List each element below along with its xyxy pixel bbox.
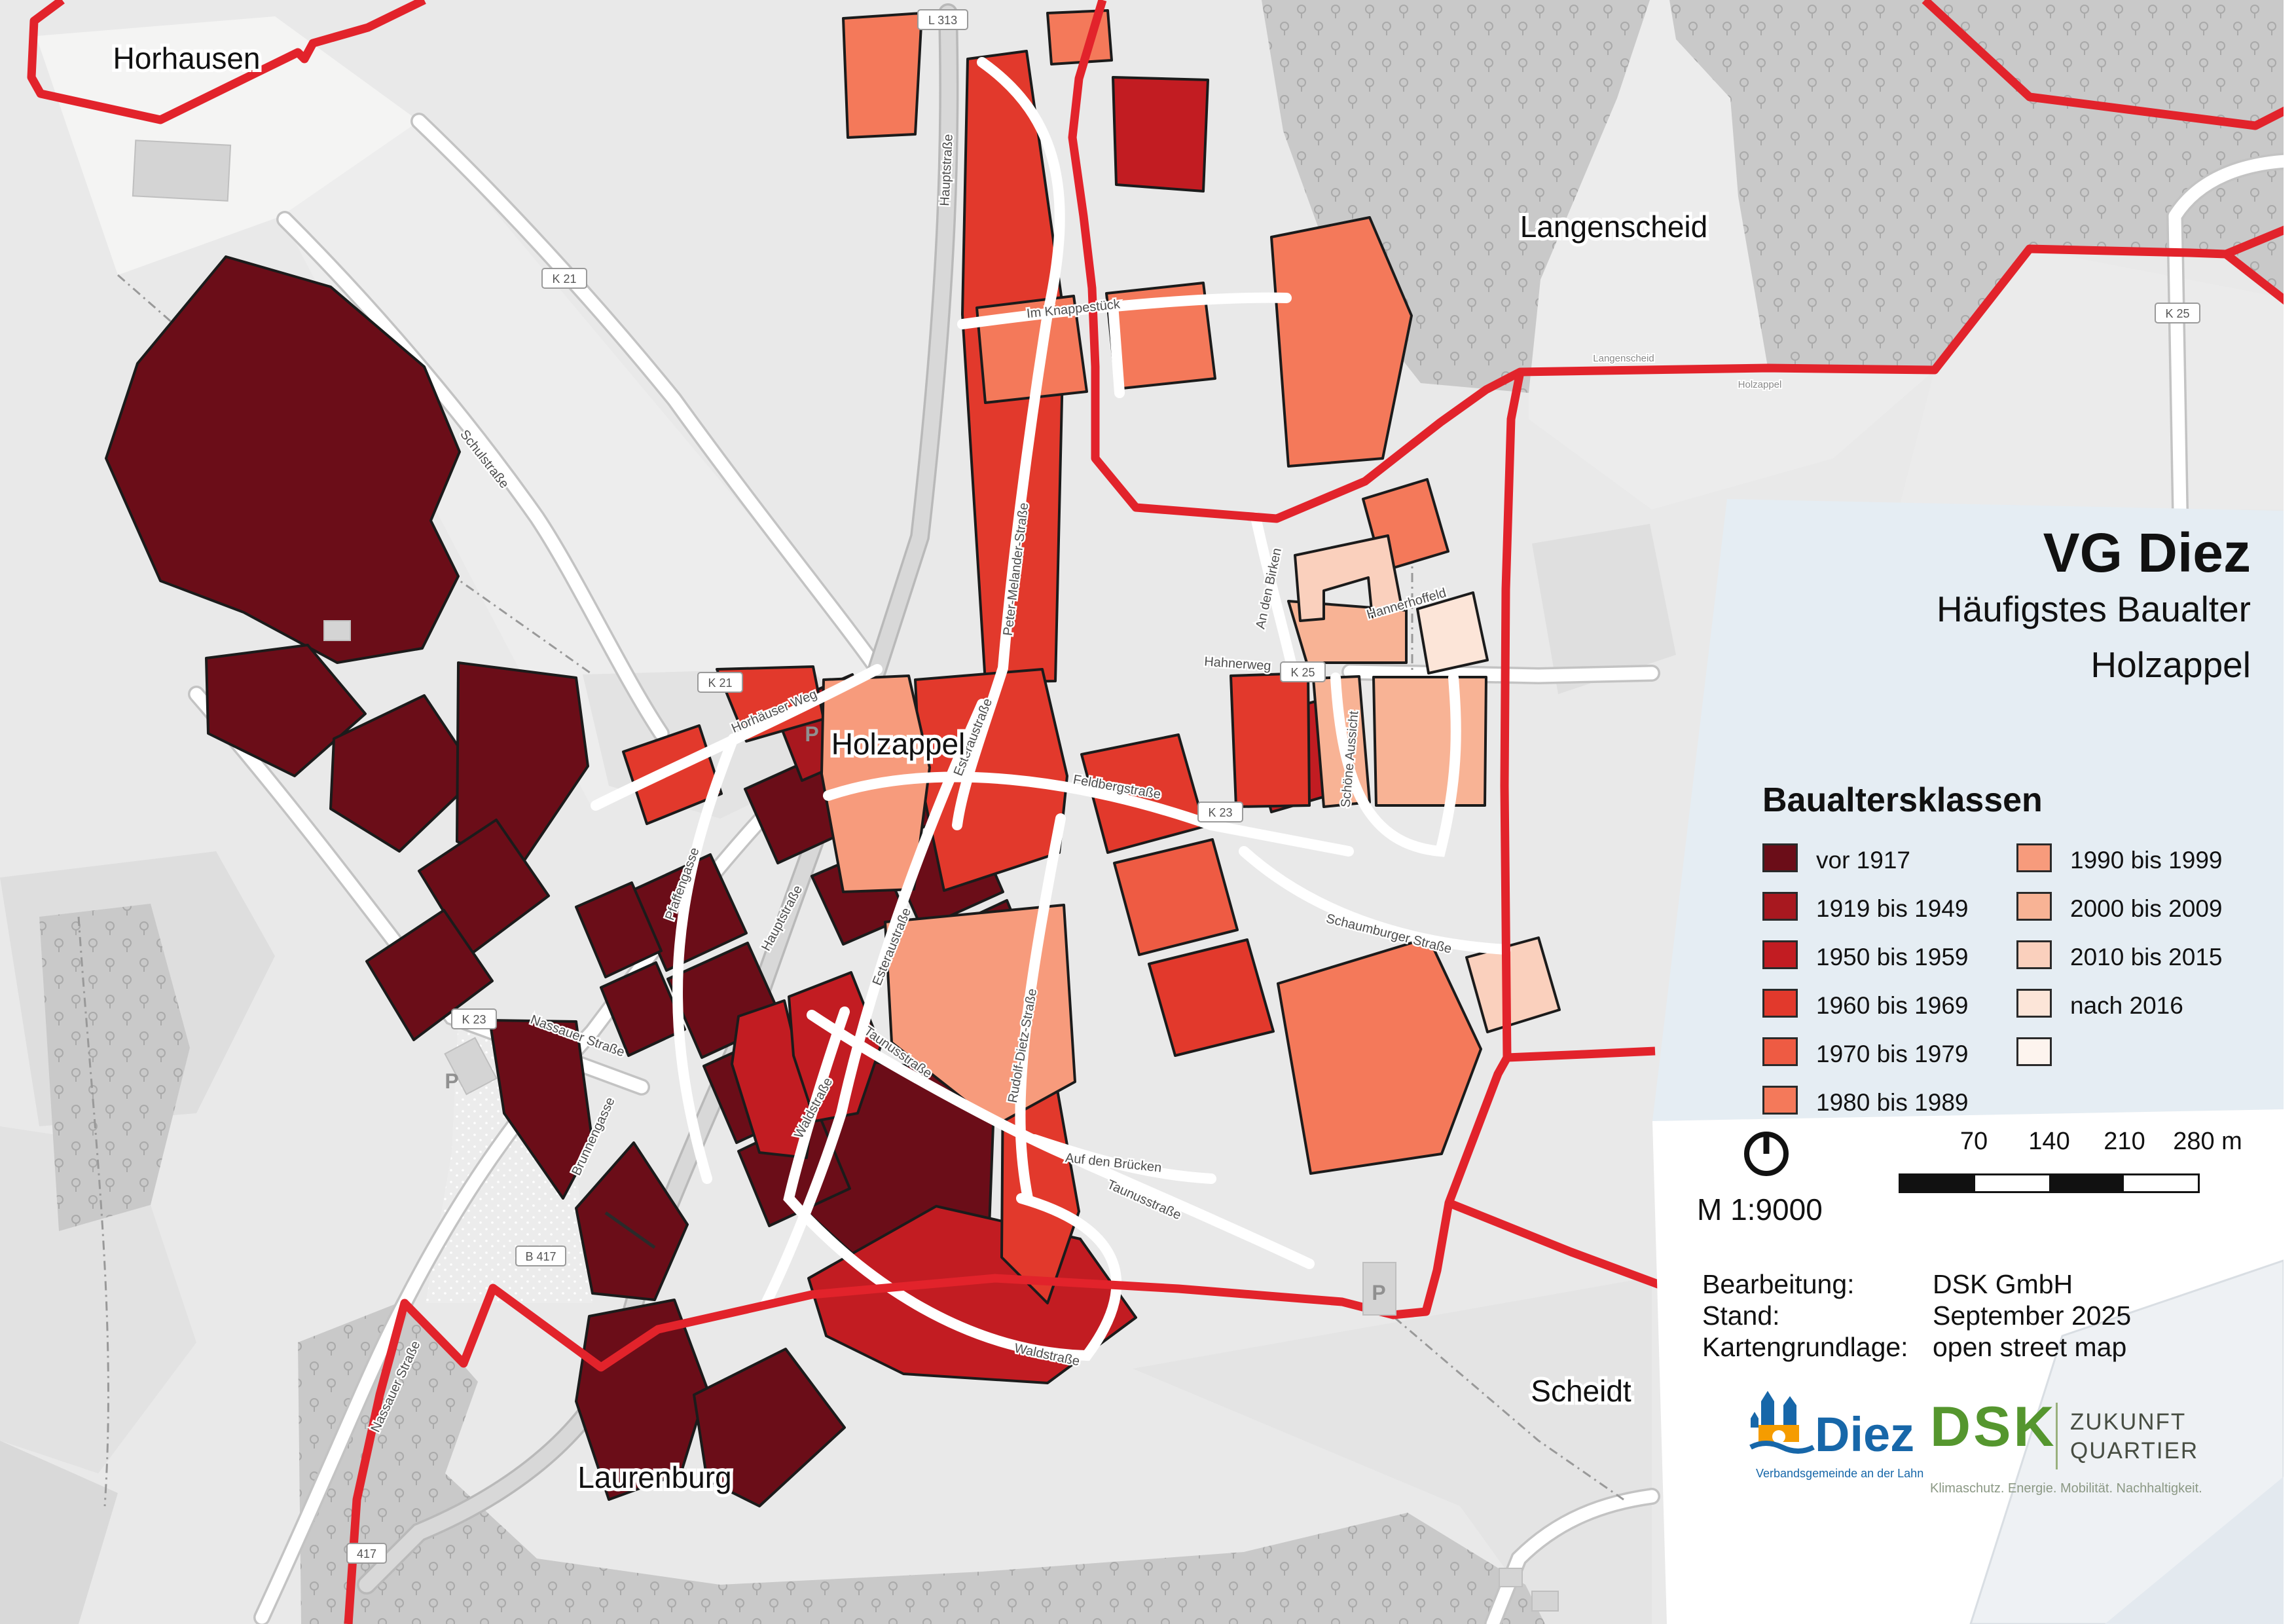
diez-castle-icon (1749, 1387, 1815, 1459)
dsk-logo-tagline: Klimaschutz. Energie. Mobilität. Nachhal… (1930, 1481, 2202, 1496)
legend-label: vor 1917 (1816, 847, 1910, 874)
scalebar-segment (2049, 1175, 2124, 1191)
legend-swatch (2016, 989, 2052, 1018)
parking-icon: P (805, 722, 818, 746)
svg-text:K 21: K 21 (708, 676, 732, 690)
legend-label: nach 2016 (2070, 992, 2183, 1020)
svg-text:K 23: K 23 (462, 1013, 486, 1026)
legend-label: 2000 bis 2009 (2070, 895, 2222, 923)
svg-text:K 21: K 21 (552, 272, 576, 286)
place-label-holzappel: Holzappel (831, 727, 966, 761)
svg-text:417: 417 (357, 1547, 376, 1560)
svg-text:Holzappel: Holzappel (1738, 379, 1782, 390)
dsk-logo-line1: ZUKUNFT (2070, 1409, 2186, 1435)
dsk-logo-text: DSK (1930, 1395, 2057, 1460)
legend-swatch (2016, 1037, 2052, 1066)
legend-swatch (2016, 940, 2052, 969)
svg-text:K 23: K 23 (1208, 806, 1232, 819)
credit-value: open street map (1933, 1332, 2126, 1363)
legend-label: 1950 bis 1959 (1816, 944, 1968, 971)
parking-icon: P (445, 1069, 458, 1093)
legend-title-block: VG Diez Häufigstes Baualter Holzappel (1937, 524, 2251, 693)
map-scale: M 1:9000 (1697, 1192, 1823, 1227)
credit-label: Bearbeitung: (1702, 1269, 1855, 1300)
legend-swatch (1762, 1086, 1798, 1115)
map-subtitle: Häufigstes Baualter (1937, 581, 2251, 637)
legend-swatch (1762, 989, 1798, 1018)
legend-label: 1960 bis 1969 (1816, 992, 1968, 1020)
svg-text:Langenscheid: Langenscheid (1593, 353, 1654, 364)
legend-swatch (1762, 1037, 1798, 1066)
place-label-horhausen: Horhausen (113, 41, 260, 75)
diez-logo-subtitle: Verbandsgemeinde an der Lahn (1756, 1467, 1923, 1481)
diez-logo-text: Diez (1815, 1407, 1914, 1462)
place-label-langenscheid: Langenscheid (1520, 210, 1707, 244)
legend-label: 1980 bis 1989 (1816, 1089, 1968, 1116)
dsk-logo-line2: QUARTIER (2070, 1438, 2198, 1464)
map-poster: K 21 K 21 K 23 K 23 K 25 K 25 L 313 B 41… (0, 0, 2296, 1624)
legend-swatch (1762, 892, 1798, 921)
svg-text:K 25: K 25 (2165, 307, 2189, 320)
legend-swatch (1762, 843, 1798, 872)
scalebar-segment (1901, 1175, 1975, 1191)
credit-label: Kartengrundlage: (1702, 1332, 1908, 1363)
scalebar-ticks: 70 140 210 280 m (0, 1128, 2296, 1156)
credit-label: Stand: (1702, 1301, 1780, 1331)
map-area-name: Holzappel (1937, 637, 2251, 693)
legend-label: 1970 bis 1979 (1816, 1041, 1968, 1068)
place-label-laurenburg: Laurenburg (577, 1460, 731, 1494)
svg-text:B 417: B 417 (525, 1250, 556, 1263)
legend-heading: Baualtersklassen (1762, 781, 2043, 820)
scalebar-segment (2124, 1175, 2198, 1191)
svg-text:K 25: K 25 (1290, 666, 1315, 679)
dsk-logo-divider (2056, 1403, 2058, 1469)
legend-label: 1919 bis 1949 (1816, 895, 1968, 923)
legend-label: 2010 bis 2015 (2070, 944, 2222, 971)
legend-swatch (1762, 940, 1798, 969)
legend-label: 1990 bis 1999 (2070, 847, 2222, 874)
svg-text:L 313: L 313 (928, 14, 957, 27)
scalebar (1899, 1173, 2200, 1193)
scalebar-tick: 70 (1960, 1128, 1988, 1156)
scalebar-segment (1975, 1175, 2050, 1191)
scalebar-tick: 210 (2104, 1128, 2145, 1156)
parking-icon: P (1372, 1281, 1385, 1304)
scalebar-tick: 140 (2028, 1128, 2069, 1156)
page-margin (2284, 0, 2296, 1624)
legend-swatch (2016, 843, 2052, 872)
credit-value: September 2025 (1933, 1301, 2131, 1331)
credit-value: DSK GmbH (1933, 1269, 2073, 1300)
place-label-scheidt: Scheidt (1531, 1374, 1631, 1408)
map-title: VG Diez (1937, 524, 2251, 581)
scalebar-tick: 280 m (2173, 1128, 2242, 1156)
legend-swatch (2016, 892, 2052, 921)
